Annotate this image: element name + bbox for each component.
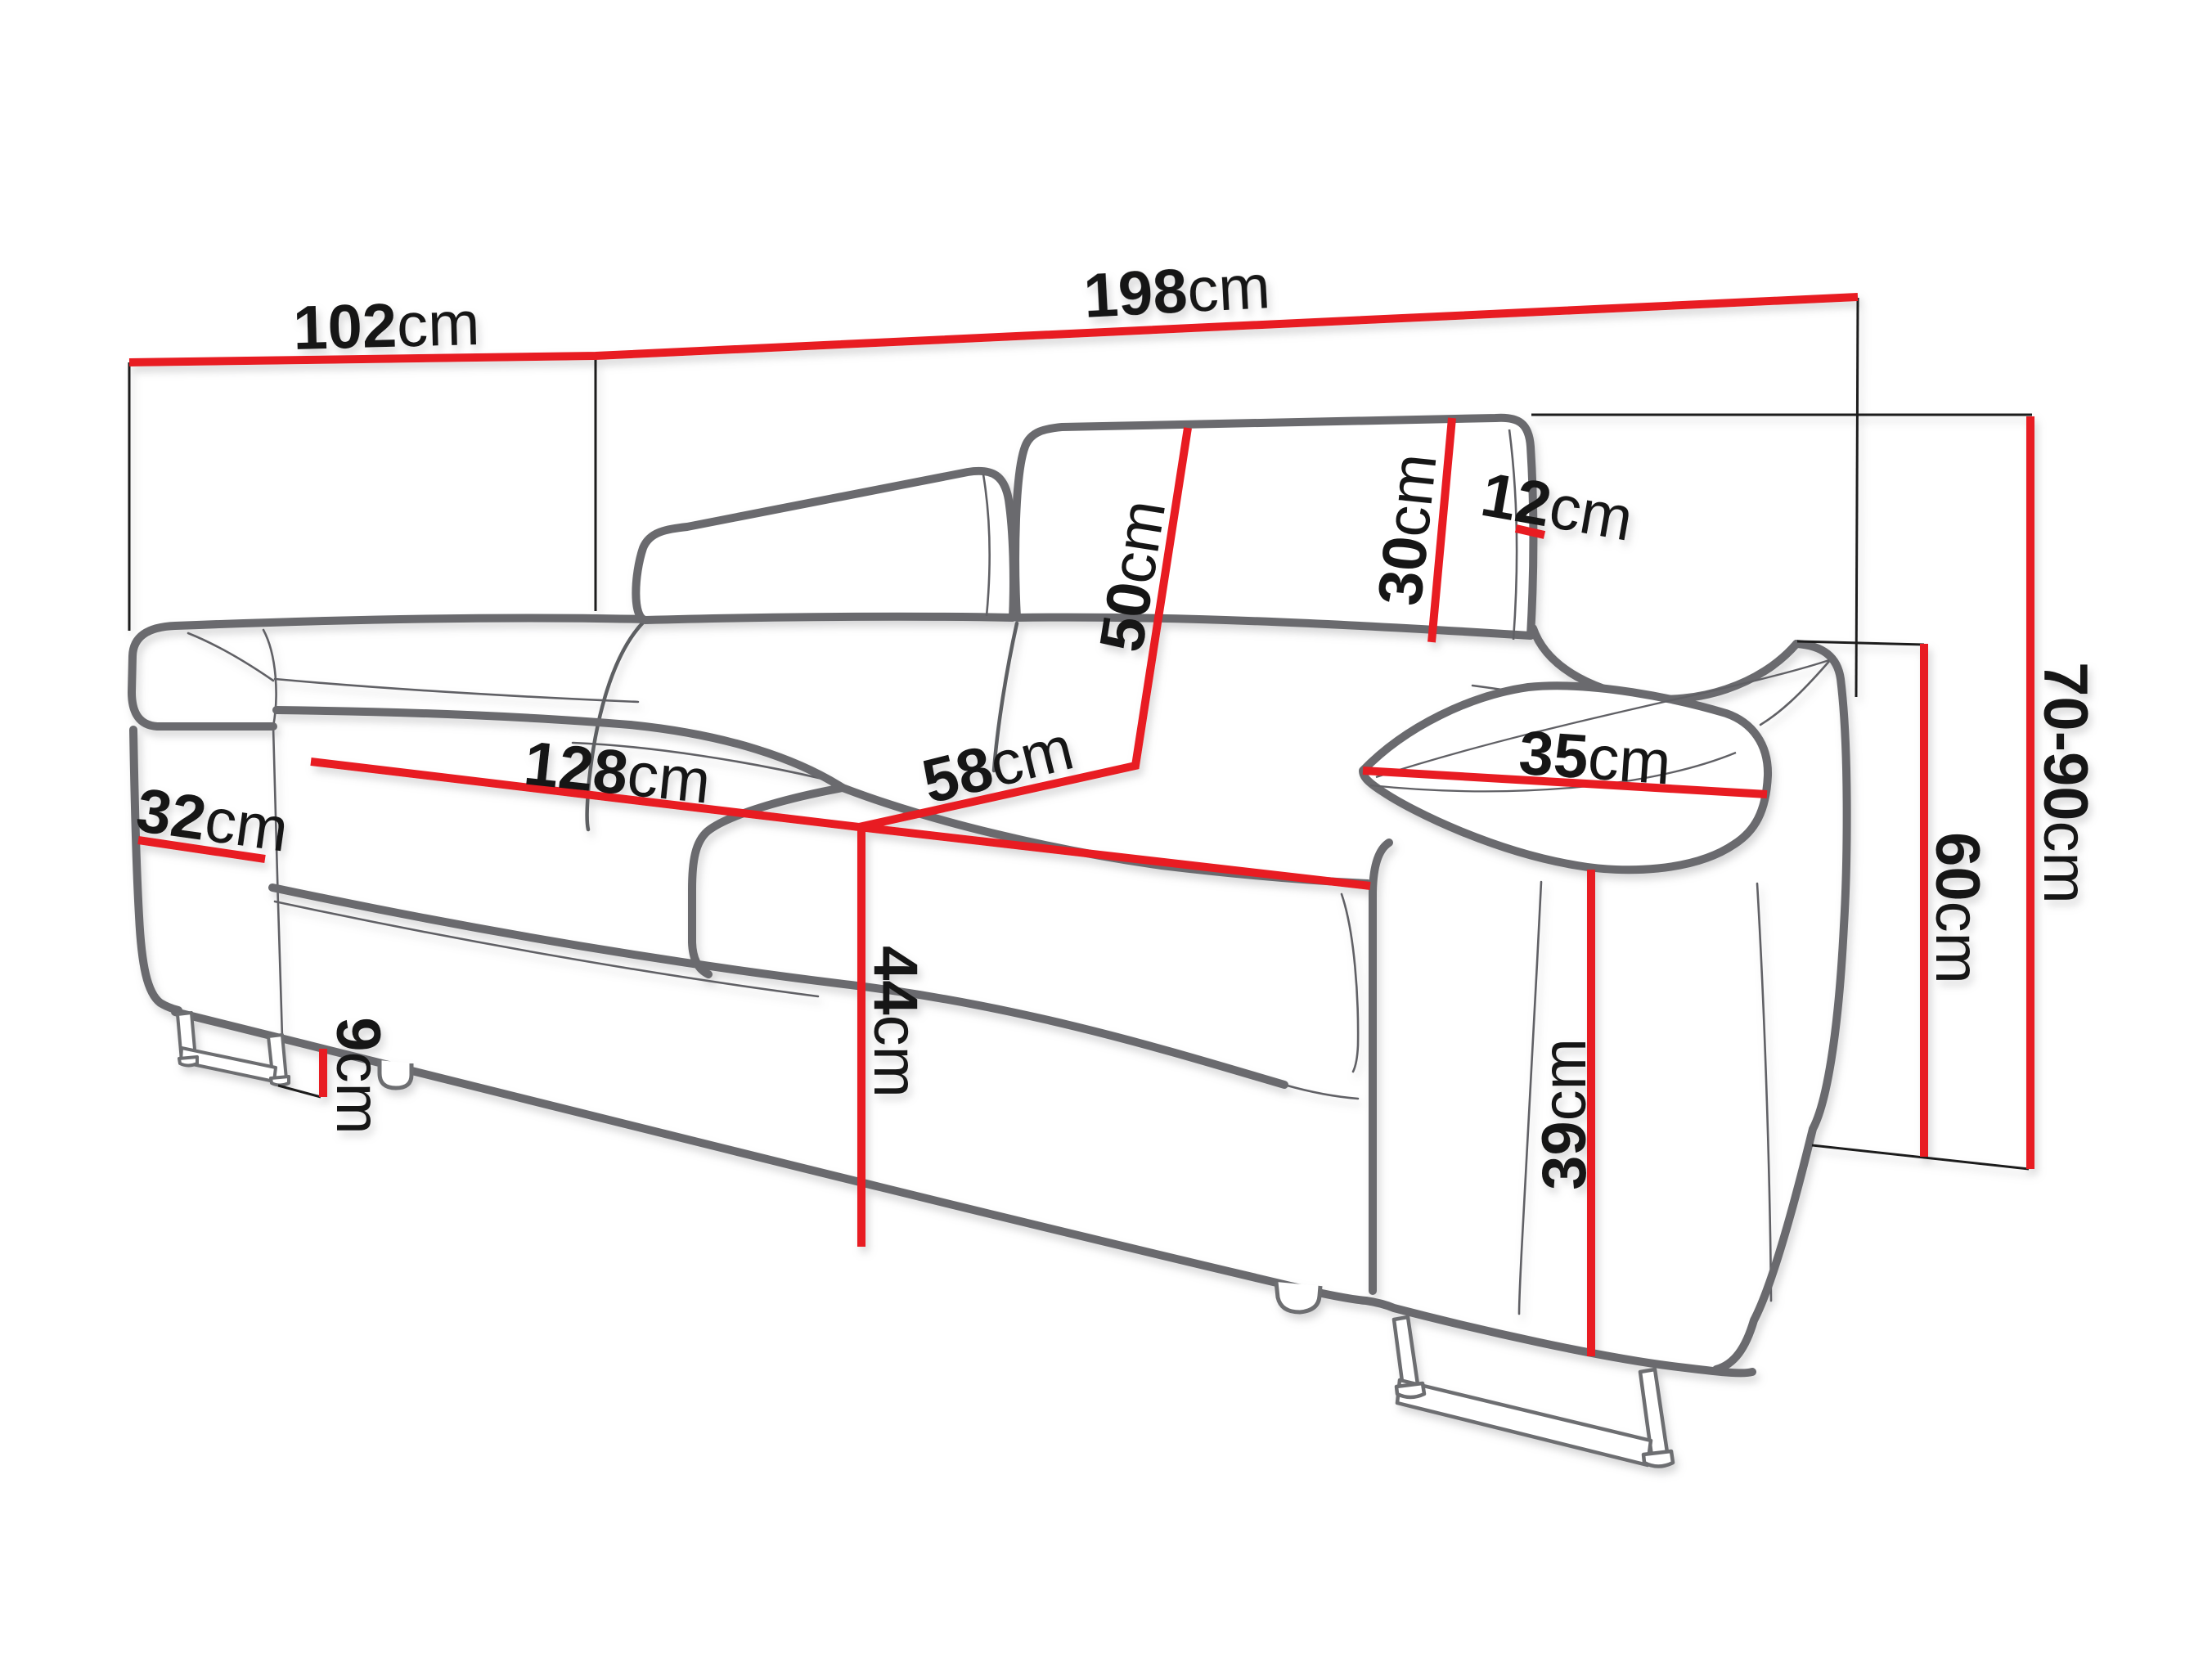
svg-text:102cm: 102cm [292,289,480,363]
svg-text:60cm: 60cm [1922,832,1992,984]
svg-text:39cm: 39cm [1530,1038,1599,1190]
svg-text:35cm: 35cm [1517,718,1673,798]
svg-text:70-90cm: 70-90cm [2030,662,2100,904]
svg-text:198cm: 198cm [1082,252,1272,331]
svg-text:44cm: 44cm [861,946,930,1098]
svg-text:9cm: 9cm [323,1017,393,1135]
